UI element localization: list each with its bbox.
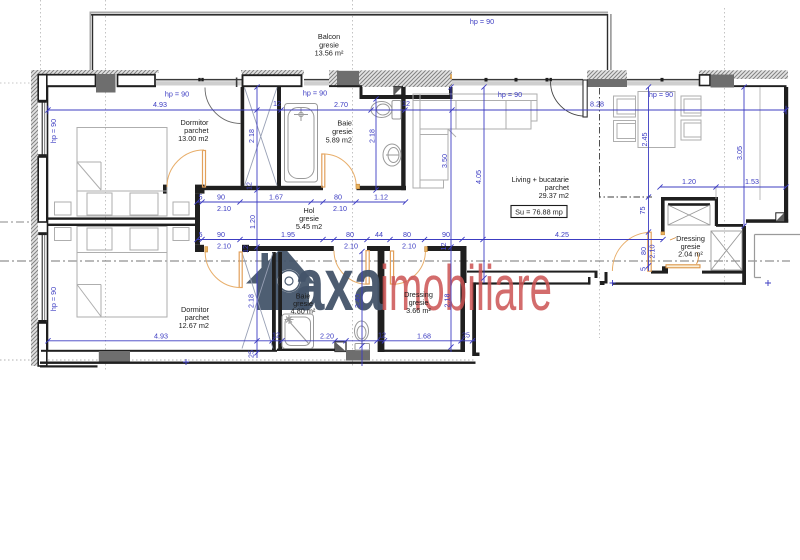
svg-text:12: 12 [272, 330, 280, 339]
svg-text:hp = 90: hp = 90 [470, 17, 494, 26]
svg-text:2.20: 2.20 [320, 331, 334, 340]
svg-text:2.18: 2.18 [247, 294, 256, 308]
svg-text:12: 12 [402, 99, 410, 108]
svg-text:13.56 m²: 13.56 m² [315, 49, 344, 58]
svg-text:29.37 m2: 29.37 m2 [539, 191, 569, 200]
svg-text:8.28: 8.28 [590, 100, 604, 109]
svg-text:25: 25 [462, 330, 470, 339]
svg-text:2.70: 2.70 [334, 100, 348, 109]
svg-text:2.10: 2.10 [344, 242, 358, 251]
svg-text:25: 25 [247, 350, 256, 358]
svg-text:12: 12 [273, 99, 281, 108]
svg-text:3.50: 3.50 [440, 154, 449, 168]
svg-text:hp = 90: hp = 90 [649, 90, 673, 99]
svg-text:hp = 90: hp = 90 [49, 287, 58, 311]
svg-text:1.67: 1.67 [269, 193, 283, 202]
svg-text:1.12: 1.12 [374, 193, 388, 202]
svg-text:90: 90 [217, 193, 225, 202]
svg-text:2.04 m²: 2.04 m² [678, 250, 703, 259]
svg-text:90: 90 [217, 230, 225, 239]
svg-text:90: 90 [442, 230, 450, 239]
svg-text:1.20: 1.20 [682, 177, 696, 186]
svg-text:2.18: 2.18 [443, 294, 452, 308]
svg-text:2.10: 2.10 [648, 245, 657, 259]
svg-text:hp = 90: hp = 90 [498, 90, 522, 99]
svg-text:12: 12 [439, 243, 448, 251]
svg-text:2.10: 2.10 [333, 204, 347, 213]
svg-text:2.10: 2.10 [217, 204, 231, 213]
svg-text:1.95: 1.95 [281, 230, 295, 239]
svg-text:Su = 76.88 mp: Su = 76.88 mp [515, 208, 563, 217]
svg-text:4.93: 4.93 [154, 331, 168, 340]
svg-text:hp = 90: hp = 90 [165, 90, 189, 99]
svg-text:2.10: 2.10 [402, 242, 416, 251]
svg-text:80: 80 [346, 230, 354, 239]
svg-text:2.40: 2.40 [353, 294, 362, 308]
svg-text:12: 12 [241, 245, 250, 253]
svg-text:2.18: 2.18 [368, 129, 377, 143]
svg-text:5.89 m2: 5.89 m2 [326, 136, 352, 145]
svg-text:5.45 m2: 5.45 m2 [296, 222, 322, 231]
svg-text:1.53: 1.53 [745, 177, 759, 186]
svg-text:5: 5 [199, 230, 203, 239]
svg-text:2.10: 2.10 [217, 242, 231, 251]
svg-text:12.67 m2: 12.67 m2 [179, 321, 209, 330]
svg-text:13.00 m2: 13.00 m2 [178, 134, 208, 143]
svg-text:1.68: 1.68 [417, 331, 431, 340]
svg-text:hp = 90: hp = 90 [49, 119, 58, 143]
svg-text:5: 5 [199, 193, 203, 202]
svg-text:75: 75 [638, 207, 647, 215]
svg-text:4.80 m²: 4.80 m² [291, 307, 316, 316]
svg-text:5: 5 [639, 267, 648, 271]
svg-text:hp = 90: hp = 90 [303, 89, 327, 98]
svg-text:3.66 m²: 3.66 m² [406, 306, 431, 315]
svg-text:80: 80 [403, 230, 411, 239]
svg-text:1.20: 1.20 [248, 215, 257, 229]
svg-text:44: 44 [375, 230, 383, 239]
svg-text:2.18: 2.18 [247, 129, 256, 143]
svg-text:4.25: 4.25 [555, 230, 569, 239]
svg-text:12: 12 [378, 330, 386, 339]
svg-text:2.45: 2.45 [640, 133, 649, 147]
svg-text:12: 12 [245, 182, 254, 190]
svg-text:4.93: 4.93 [153, 100, 167, 109]
svg-text:4.05: 4.05 [474, 170, 483, 184]
svg-text:3.05: 3.05 [735, 146, 744, 160]
svg-text:80: 80 [334, 193, 342, 202]
